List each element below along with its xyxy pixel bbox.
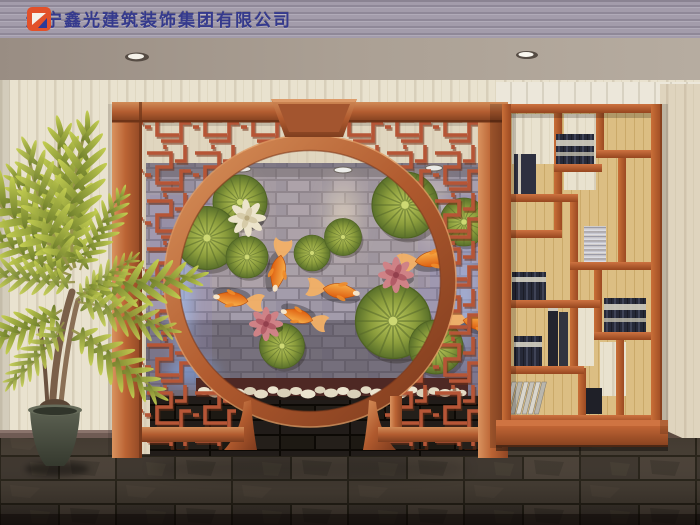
book-stack bbox=[512, 272, 546, 300]
display-shelf bbox=[490, 104, 668, 451]
book-stack bbox=[604, 298, 646, 332]
tall-book bbox=[514, 154, 536, 194]
recessed-downlight bbox=[125, 53, 149, 62]
cd-stack bbox=[584, 226, 606, 262]
scene-canvas bbox=[0, 0, 700, 525]
book-pair bbox=[548, 308, 568, 366]
book-stack bbox=[514, 336, 542, 366]
shelf-plinth bbox=[496, 420, 668, 451]
gate-keystone bbox=[271, 99, 357, 137]
company-watermark: 辽宁鑫光建筑装饰集团有限公司 bbox=[26, 6, 292, 31]
gate-bottom-rail bbox=[140, 427, 244, 442]
ceiling bbox=[0, 30, 700, 86]
xinguang-logo-icon bbox=[26, 6, 52, 32]
gate-bottom-rail bbox=[378, 427, 492, 442]
top-edge bbox=[0, 0, 700, 2]
interior-render: 辽宁鑫光建筑装饰集团有限公司 bbox=[0, 0, 700, 525]
company-name: 辽宁鑫光建筑装饰集团有限公司 bbox=[26, 6, 292, 31]
small-book bbox=[586, 388, 602, 414]
book-stack bbox=[556, 134, 594, 164]
recessed-downlight bbox=[516, 51, 538, 59]
